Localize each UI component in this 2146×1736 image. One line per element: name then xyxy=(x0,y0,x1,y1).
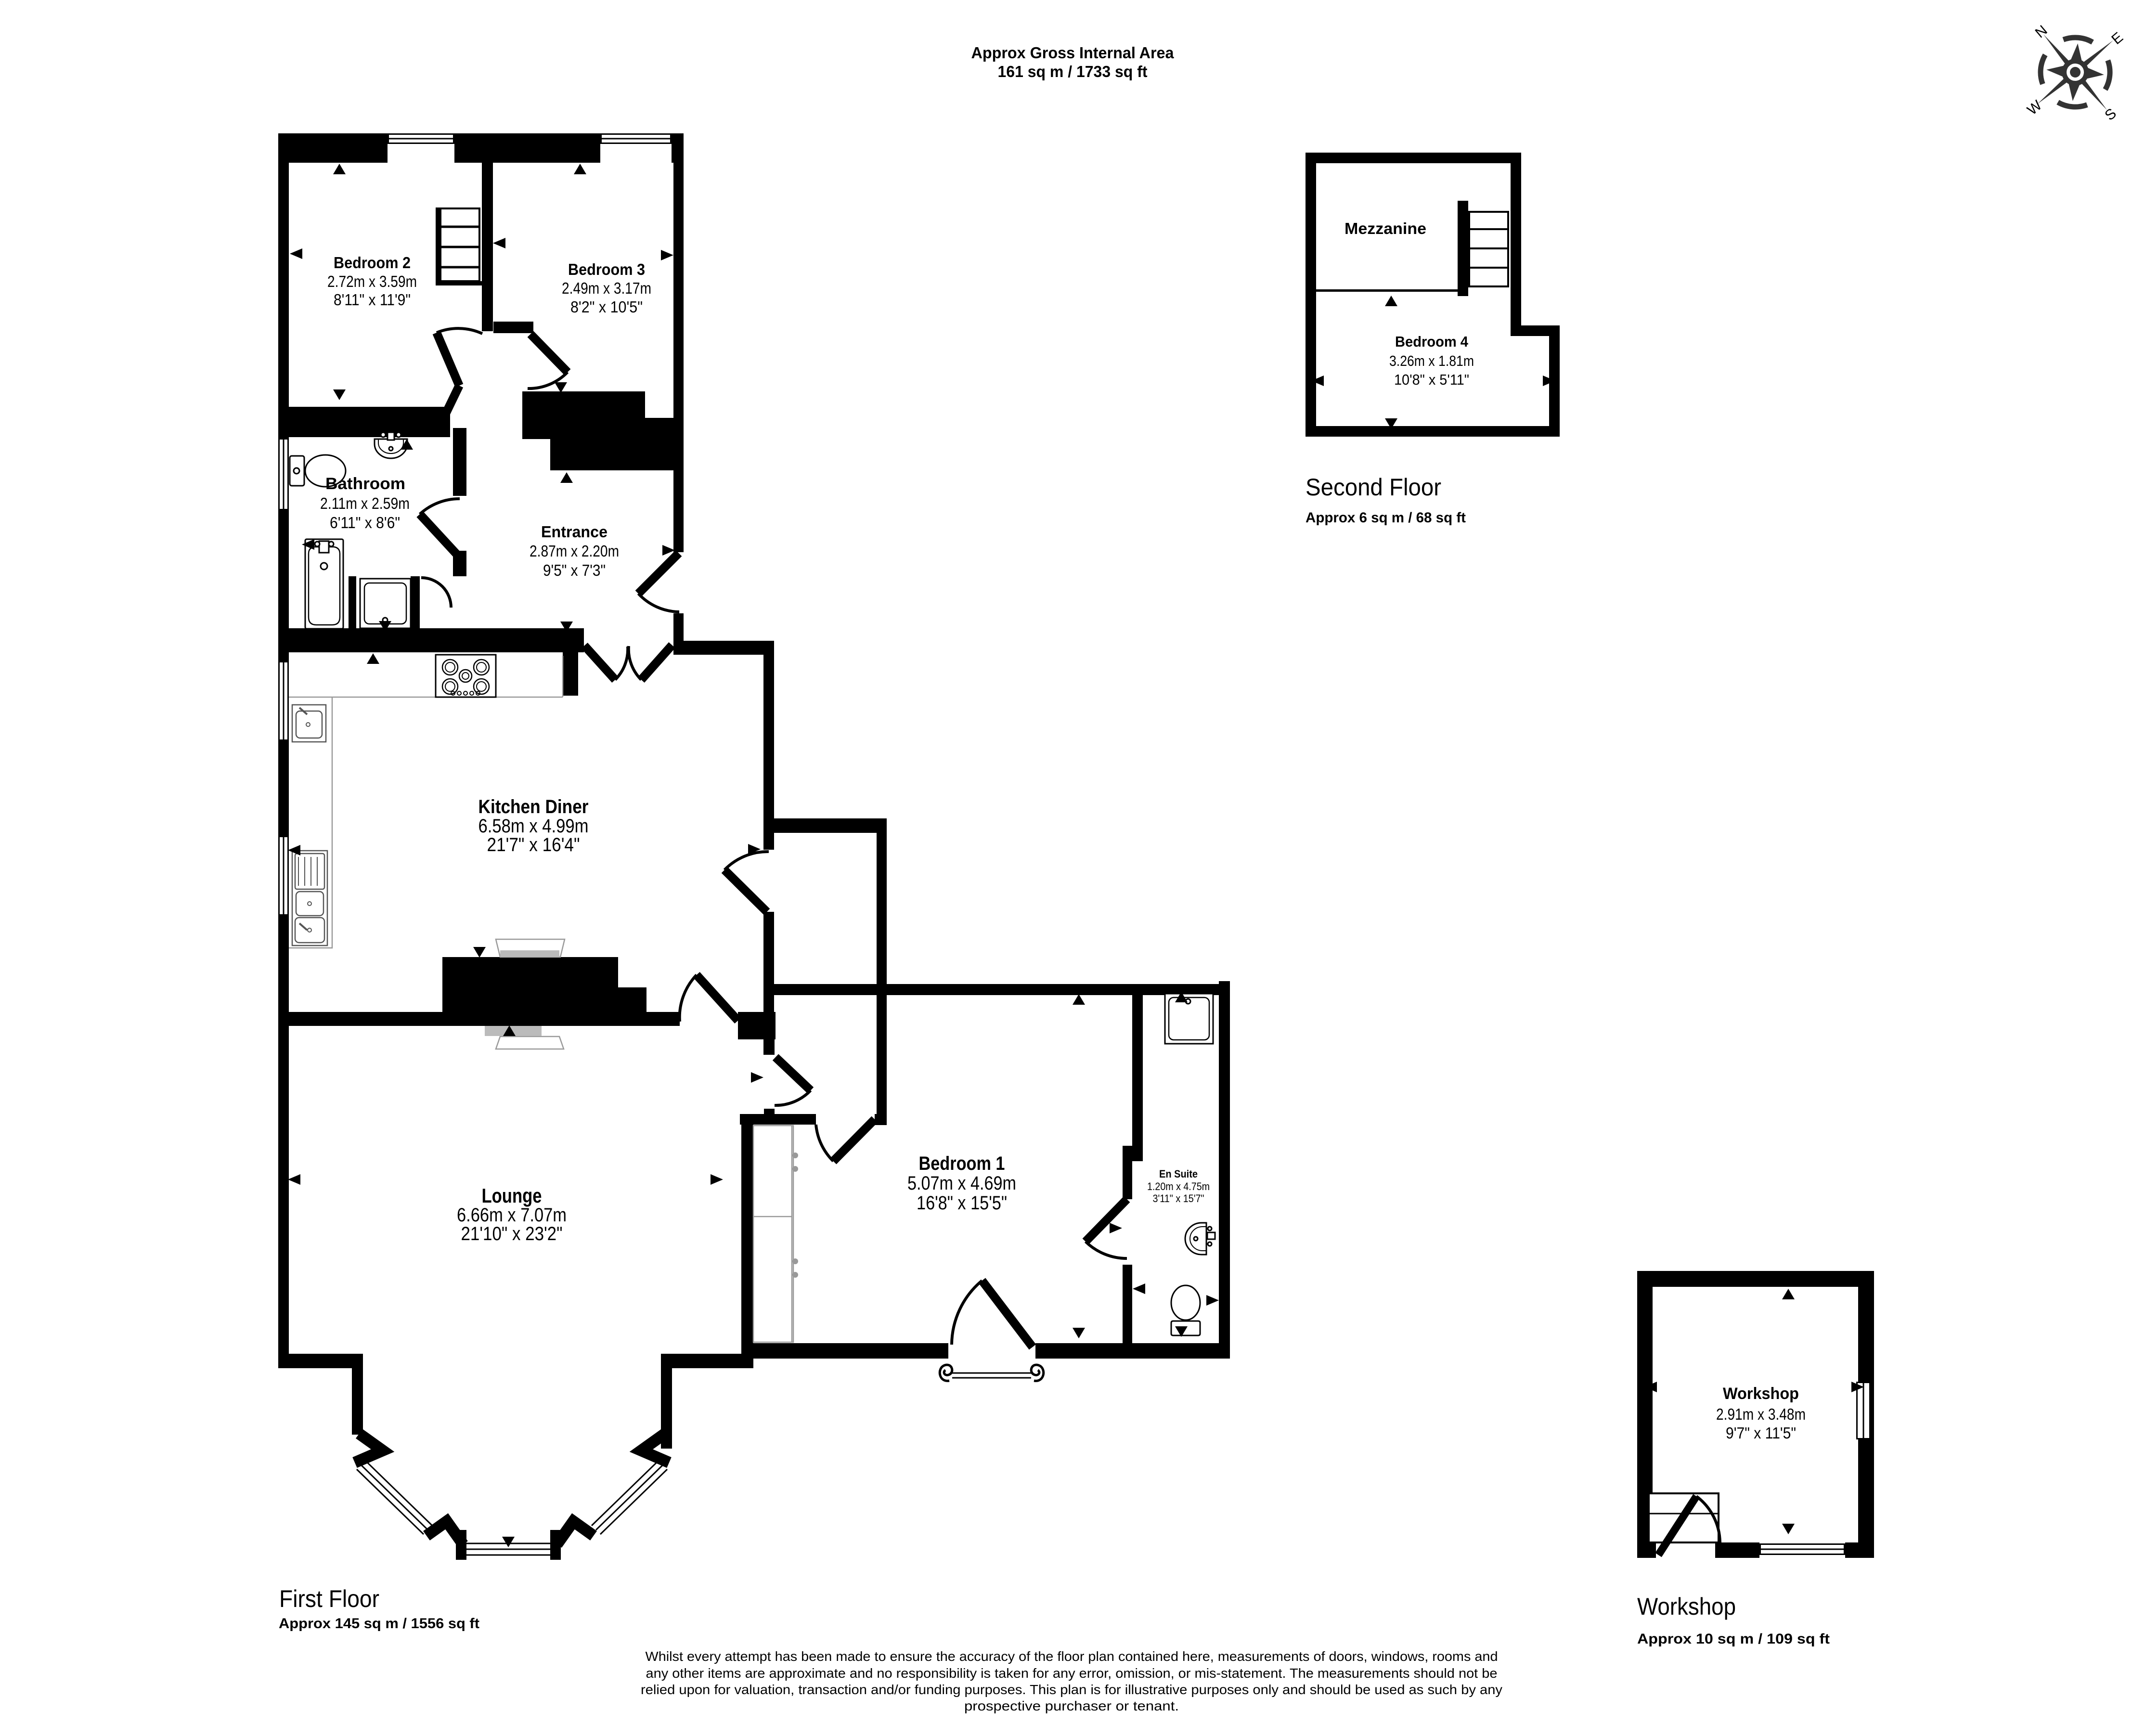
svg-text:9'5" x 7'3": 9'5" x 7'3" xyxy=(543,561,606,579)
svg-text:Lounge: Lounge xyxy=(482,1184,542,1207)
svg-text:2.87m x 2.20m: 2.87m x 2.20m xyxy=(530,542,619,560)
svg-text:16'8" x 15'5": 16'8" x 15'5" xyxy=(917,1192,1007,1214)
svg-text:prospective purchaser or tenan: prospective purchaser or tenant. xyxy=(964,1698,1179,1713)
svg-text:8'2" x 10'5": 8'2" x 10'5" xyxy=(570,298,643,316)
svg-text:6'11" x 8'6": 6'11" x 8'6" xyxy=(330,514,400,531)
svg-text:6.58m x 4.99m: 6.58m x 4.99m xyxy=(478,816,589,837)
svg-text:Bathroom: Bathroom xyxy=(325,475,405,493)
svg-text:Mezzanine: Mezzanine xyxy=(1344,220,1426,237)
svg-text:relied upon for valuation, tra: relied upon for valuation, transaction a… xyxy=(641,1682,1502,1697)
svg-text:3'11" x 15'7": 3'11" x 15'7" xyxy=(1153,1192,1204,1205)
svg-text:9'7" x 11'5": 9'7" x 11'5" xyxy=(1726,1424,1796,1442)
svg-text:Approx 145 sq m / 1556 sq ft: Approx 145 sq m / 1556 sq ft xyxy=(279,1616,479,1632)
svg-text:161 sq m / 1733 sq ft: 161 sq m / 1733 sq ft xyxy=(998,63,1148,80)
svg-text:Workshop: Workshop xyxy=(1637,1593,1736,1620)
svg-text:Whilst every attempt has been: Whilst every attempt has been made to en… xyxy=(646,1649,1498,1664)
svg-text:21'7" x 16'4": 21'7" x 16'4" xyxy=(487,834,580,855)
svg-text:Bedroom 1: Bedroom 1 xyxy=(919,1153,1005,1174)
svg-text:2.91m x 3.48m: 2.91m x 3.48m xyxy=(1716,1405,1806,1423)
svg-text:2.11m x 2.59m: 2.11m x 2.59m xyxy=(320,494,410,512)
svg-text:Bedroom 3: Bedroom 3 xyxy=(568,260,645,278)
svg-text:Approx Gross Internal Area: Approx Gross Internal Area xyxy=(971,44,1175,62)
svg-text:3.26m x 1.81m: 3.26m x 1.81m xyxy=(1389,352,1474,369)
svg-text:2.72m x 3.59m: 2.72m x 3.59m xyxy=(327,272,417,290)
svg-text:21'10" x 23'2": 21'10" x 23'2" xyxy=(461,1223,563,1244)
svg-text:2.49m x 3.17m: 2.49m x 3.17m xyxy=(562,279,651,297)
svg-text:Entrance: Entrance xyxy=(541,523,608,541)
svg-text:Approx 6 sq m / 68 sq ft: Approx 6 sq m / 68 sq ft xyxy=(1306,510,1466,526)
svg-text:8'11" x 11'9": 8'11" x 11'9" xyxy=(334,291,411,309)
svg-text:Bedroom 4: Bedroom 4 xyxy=(1395,333,1469,350)
svg-text:any other items are approximat: any other items are approximate and no r… xyxy=(646,1666,1498,1681)
svg-text:Bedroom 2: Bedroom 2 xyxy=(334,254,411,272)
svg-text:6.66m x 7.07m: 6.66m x 7.07m xyxy=(457,1205,567,1226)
svg-text:First Floor: First Floor xyxy=(279,1585,379,1612)
svg-text:Workshop: Workshop xyxy=(1723,1385,1799,1403)
svg-text:Kitchen Diner: Kitchen Diner xyxy=(478,796,589,817)
svg-text:Approx 10 sq m / 109 sq ft: Approx 10 sq m / 109 sq ft xyxy=(1637,1631,1830,1647)
svg-text:5.07m x 4.69m: 5.07m x 4.69m xyxy=(907,1173,1016,1194)
svg-text:En Suite: En Suite xyxy=(1159,1168,1198,1180)
svg-text:10'8" x 5'11": 10'8" x 5'11" xyxy=(1394,371,1469,388)
svg-text:Second Floor: Second Floor xyxy=(1306,474,1441,501)
svg-text:1.20m x 4.75m: 1.20m x 4.75m xyxy=(1147,1180,1210,1192)
